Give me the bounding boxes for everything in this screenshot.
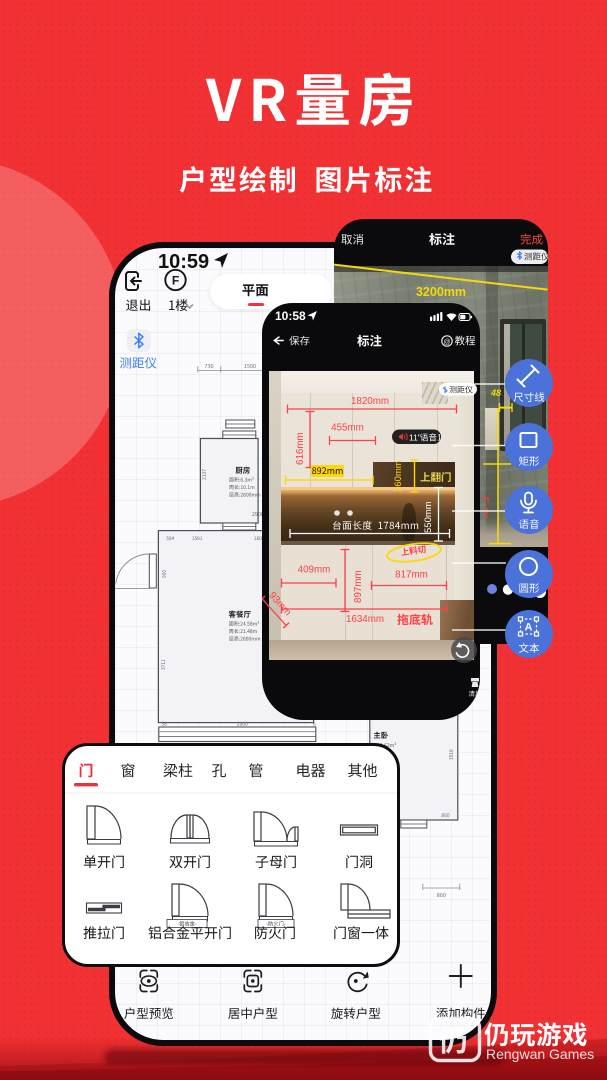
svg-text:Rengwan Games: Rengwan Games — [486, 1046, 594, 1062]
